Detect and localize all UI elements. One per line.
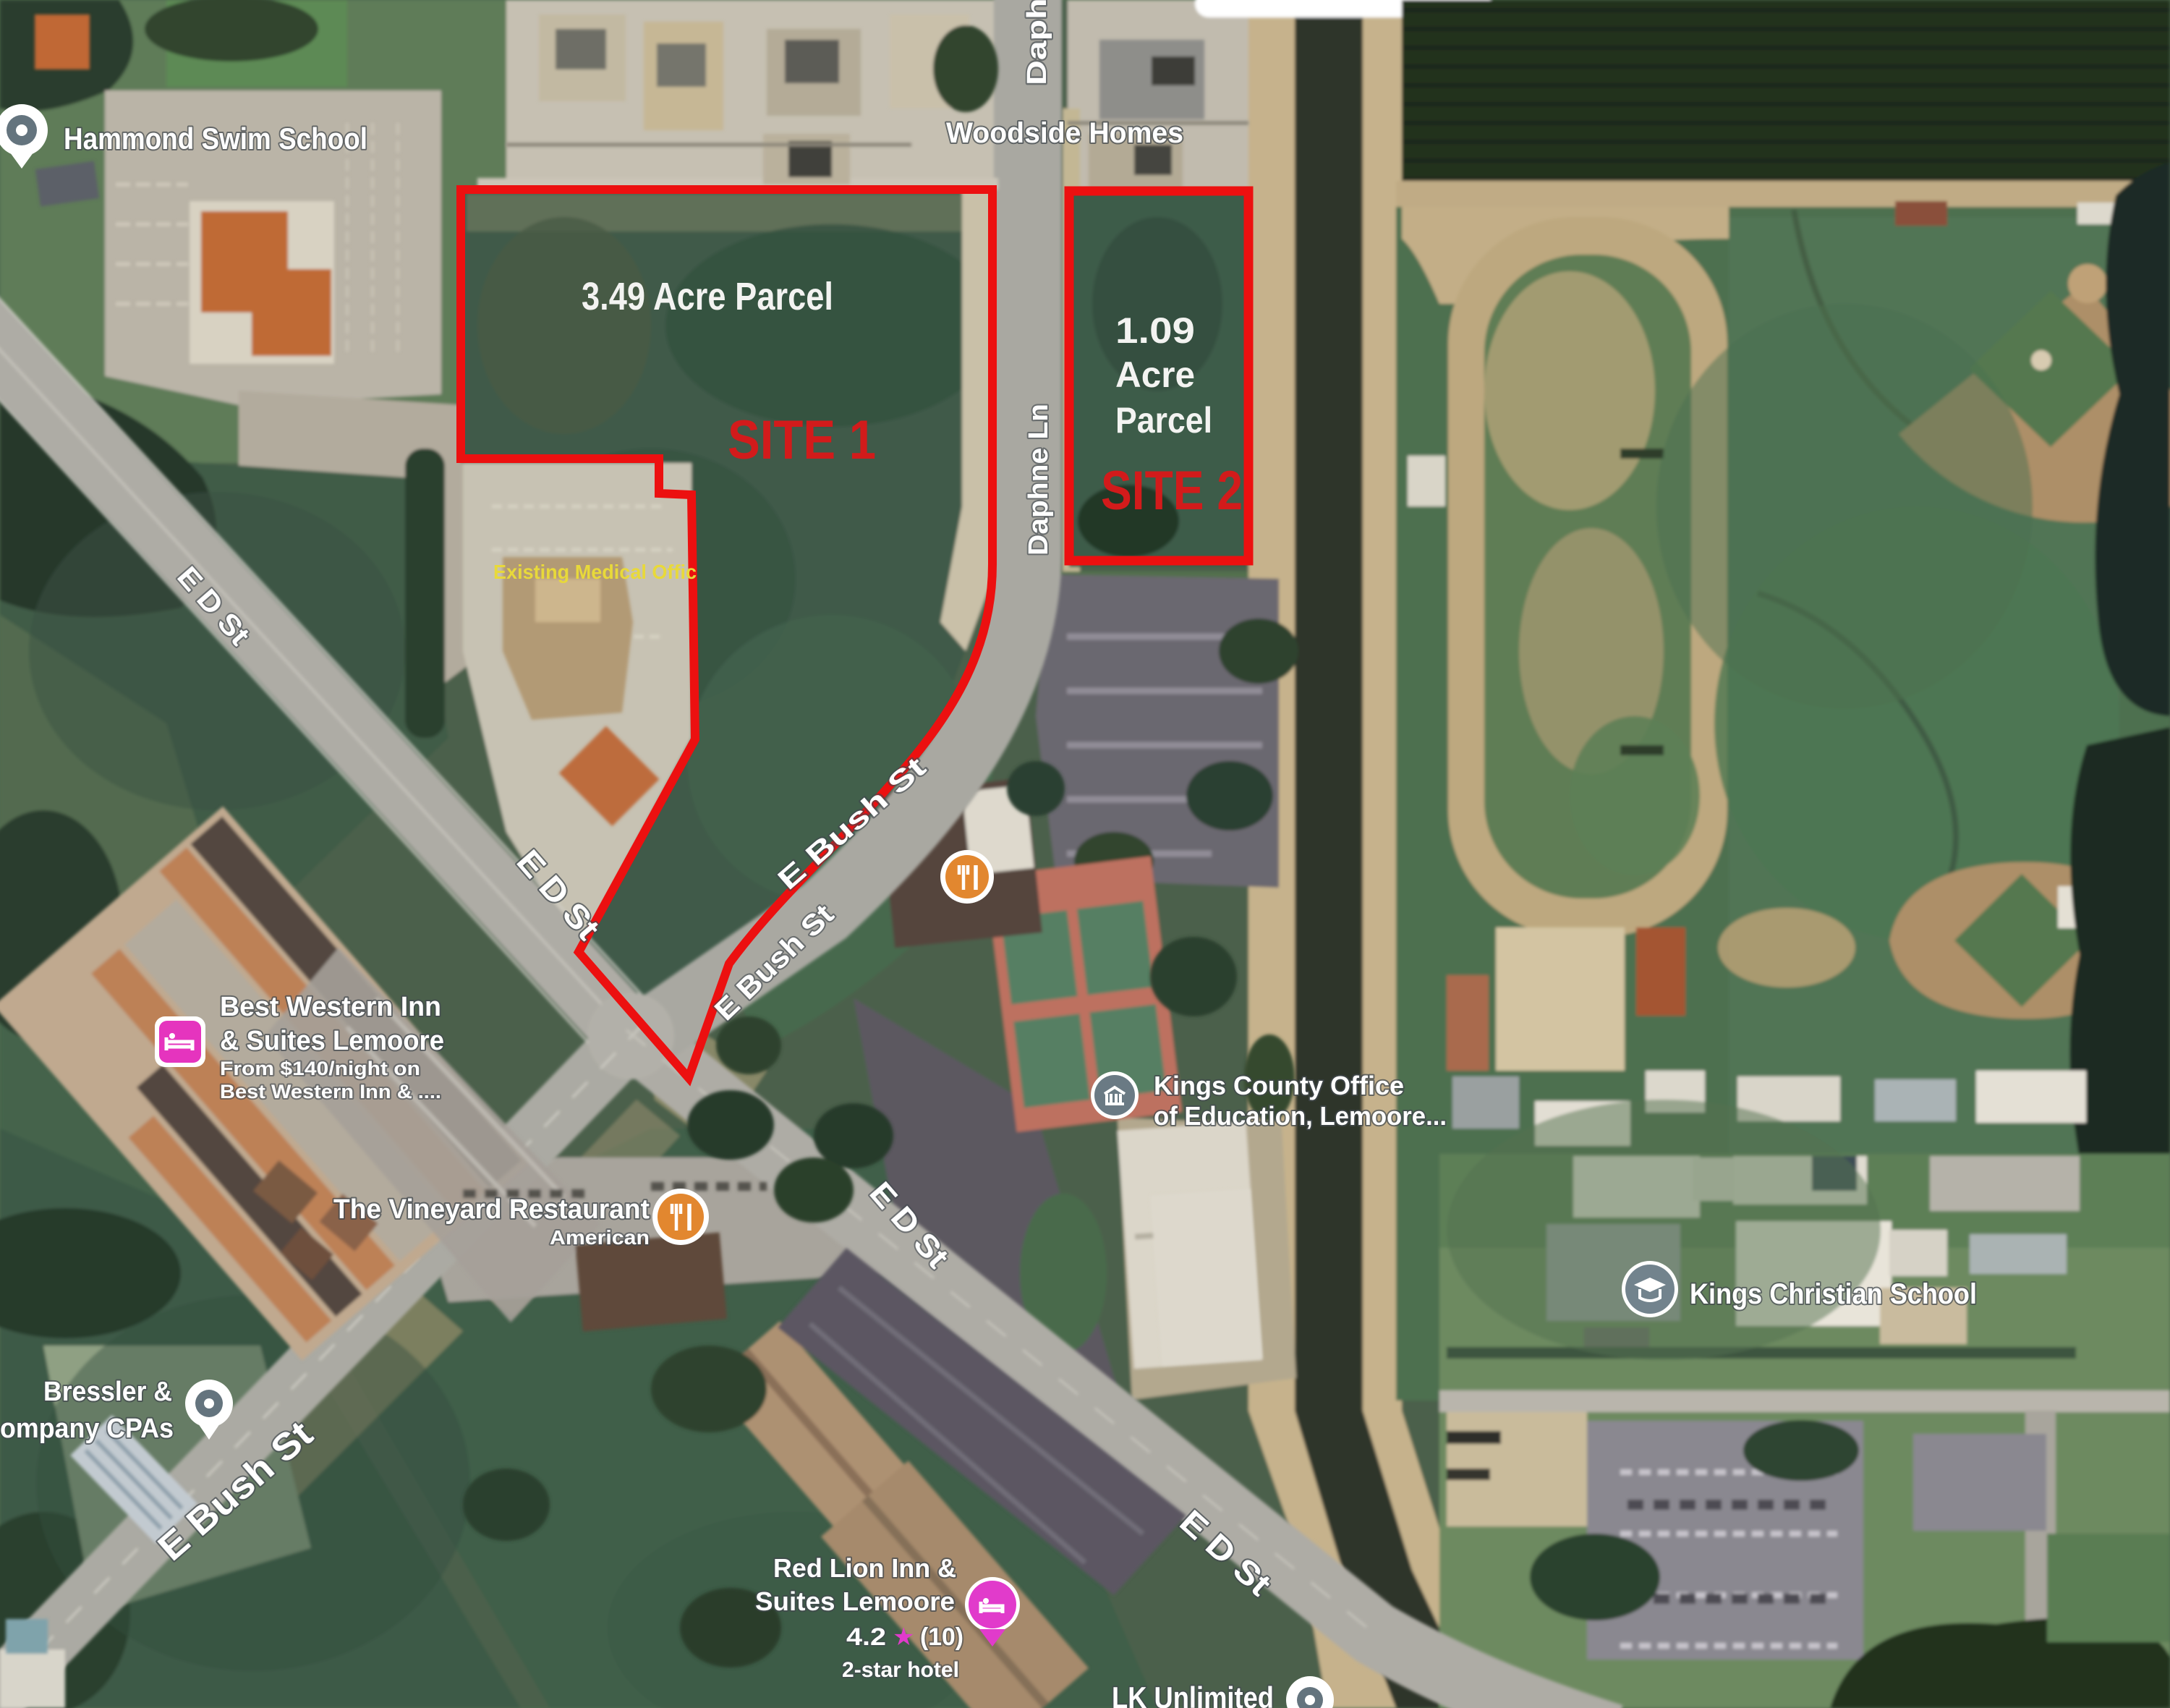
svg-text:of Education, Lemoore...: of Education, Lemoore... xyxy=(1154,1101,1447,1131)
svg-text:Kings Christian School: Kings Christian School xyxy=(1690,1278,1977,1310)
svg-text:2-star hotel: 2-star hotel xyxy=(842,1658,959,1682)
svg-text:Suites Lemoore: Suites Lemoore xyxy=(755,1586,955,1616)
svg-text:SITE 1: SITE 1 xyxy=(728,409,876,471)
svg-text:ompany CPAs: ompany CPAs xyxy=(0,1414,174,1444)
svg-text:Best Western Inn & ....: Best Western Inn & .... xyxy=(220,1081,441,1102)
svg-text:Bressler &: Bressler & xyxy=(43,1377,172,1407)
svg-text:SITE 2: SITE 2 xyxy=(1101,460,1243,522)
svg-text:& Suites Lemoore: & Suites Lemoore xyxy=(220,1026,444,1056)
svg-text:The Vineyard Restaurant: The Vineyard Restaurant xyxy=(333,1194,650,1225)
svg-text:Daphne Ln: Daphne Ln xyxy=(1024,404,1054,556)
svg-text:Best Western Inn: Best Western Inn xyxy=(220,992,441,1022)
svg-text:Acre: Acre xyxy=(1115,354,1195,395)
svg-text:Parcel: Parcel xyxy=(1115,400,1212,441)
svg-text:★: ★ xyxy=(893,1623,914,1651)
svg-text:Kings County Office: Kings County Office xyxy=(1154,1071,1404,1100)
svg-text:Daphn: Daphn xyxy=(1022,0,1052,85)
svg-text:1.09: 1.09 xyxy=(1115,310,1195,351)
svg-text:Existing Medical Offic: Existing Medical Offic xyxy=(493,561,697,583)
svg-text:4.2: 4.2 xyxy=(846,1623,886,1651)
svg-text:American: American xyxy=(550,1226,650,1249)
svg-text:From $140/night on: From $140/night on xyxy=(220,1058,420,1079)
svg-text:(10): (10) xyxy=(920,1623,963,1651)
svg-text:Red Lion Inn &: Red Lion Inn & xyxy=(773,1553,956,1583)
svg-text:3.49 Acre Parcel: 3.49 Acre Parcel xyxy=(582,275,833,318)
svg-text:Hammond Swim School: Hammond Swim School xyxy=(64,122,367,156)
svg-text:Woodside Homes: Woodside Homes xyxy=(946,117,1183,149)
svg-text:LK Unlimited: LK Unlimited xyxy=(1112,1681,1274,1708)
